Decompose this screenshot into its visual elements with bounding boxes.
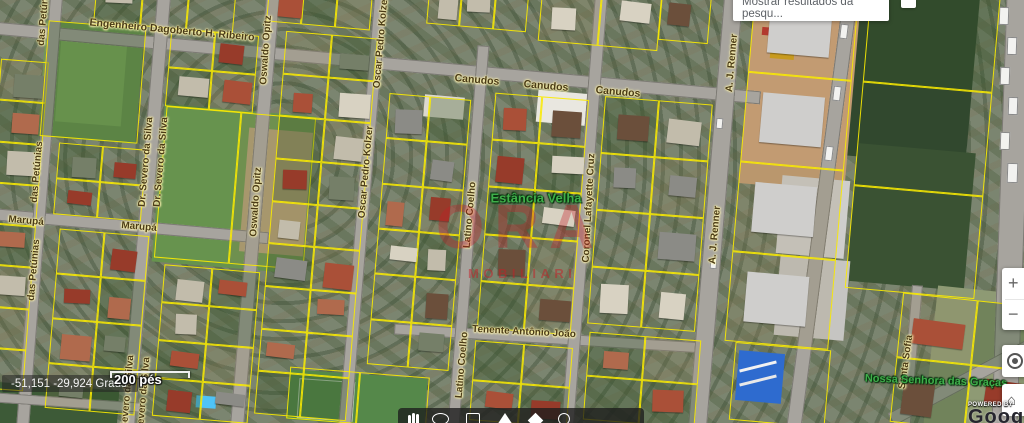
parcel-block [426, 0, 530, 32]
vehicle [999, 7, 1010, 25]
parcel [845, 185, 984, 299]
parcel [654, 100, 712, 161]
parcel [48, 318, 97, 367]
parcel [729, 342, 831, 423]
roof [71, 157, 96, 179]
parcel [158, 302, 209, 344]
roof [13, 74, 44, 98]
parcel [56, 229, 105, 278]
roof [484, 390, 513, 409]
roof [652, 390, 683, 413]
vehicle [1007, 37, 1018, 55]
parcel [411, 277, 456, 326]
parcel [854, 82, 993, 196]
parcel [325, 77, 374, 123]
roof [551, 7, 576, 30]
parcel [596, 153, 654, 214]
roof [657, 232, 696, 262]
roof [668, 175, 697, 198]
street-label-canudos-3: Canudos [595, 84, 641, 100]
parcel [200, 382, 251, 423]
parcel-block [254, 31, 378, 421]
roof [667, 2, 691, 26]
roof [329, 176, 355, 200]
roof [666, 119, 702, 147]
parcel [378, 183, 423, 232]
zoom-in-button[interactable]: + [1002, 268, 1024, 299]
parcel [268, 201, 317, 247]
parcel [165, 67, 212, 110]
roof [437, 0, 458, 20]
vehicle [1000, 132, 1011, 150]
parcel [56, 142, 103, 182]
marker-tool-icon[interactable] [556, 411, 573, 423]
roof [551, 156, 584, 175]
warehouse-roof [759, 92, 825, 147]
parcel [301, 0, 340, 27]
roof [278, 0, 304, 18]
roof [338, 93, 371, 119]
parcel [367, 319, 412, 368]
parcel [382, 138, 427, 187]
roof [317, 299, 345, 315]
zoom-out-button[interactable]: − [1002, 300, 1024, 331]
roof [60, 334, 93, 361]
parcel [101, 232, 150, 281]
pan-tool-icon[interactable] [412, 413, 415, 423]
parcel [597, 0, 662, 51]
roof [292, 92, 313, 112]
parcel [426, 0, 463, 26]
parcel [493, 0, 530, 32]
vehicle [1000, 67, 1011, 85]
roof [108, 297, 132, 320]
roof [105, 0, 132, 3]
roof [166, 390, 192, 414]
parcel [650, 157, 708, 218]
watermark-logo: ORA [436, 192, 604, 263]
parcel [335, 0, 374, 30]
parcel [725, 251, 836, 350]
roof [177, 76, 209, 98]
parcel [601, 96, 659, 157]
map-scale: 200 pés [110, 371, 190, 387]
parcel [97, 277, 146, 326]
parcel [276, 116, 325, 162]
roof [603, 351, 629, 370]
street-label-canudos-1: Canudos [454, 72, 500, 88]
roof [218, 279, 247, 296]
roof [104, 335, 126, 352]
roof [0, 231, 25, 248]
parcel [307, 290, 356, 336]
parcel [0, 305, 29, 350]
roof [395, 110, 423, 135]
vehicle [1006, 163, 1018, 183]
ellipse-tool-icon[interactable] [432, 413, 449, 423]
watermark-text: MOBILIARI [468, 266, 576, 281]
parcel [0, 59, 49, 104]
parcel [587, 267, 645, 328]
roof [599, 284, 628, 314]
parcel [161, 264, 212, 306]
my-location-button[interactable] [1002, 345, 1024, 377]
roof [274, 257, 307, 281]
warehouse-roof [743, 271, 809, 326]
parcel [586, 332, 645, 380]
roof [169, 350, 199, 369]
roof [430, 160, 454, 183]
triangle-tool-icon[interactable] [497, 413, 513, 423]
roof [418, 333, 444, 353]
roof [911, 318, 965, 349]
parcel [408, 322, 453, 371]
roof [110, 249, 138, 273]
roof [67, 190, 92, 206]
parcel [265, 243, 314, 289]
roof [389, 245, 417, 262]
roof [339, 53, 369, 70]
ui-fragment [901, 0, 916, 8]
parcel [328, 35, 377, 81]
roof [659, 292, 687, 320]
parcel [459, 0, 496, 29]
parcel [279, 73, 328, 119]
show-search-results-button[interactable]: Mostrar resultados da pesqu... [733, 0, 889, 21]
roof [215, 392, 245, 408]
parcel [386, 93, 431, 142]
provider-logo: Google [968, 408, 1024, 423]
roof [552, 110, 582, 138]
parcel [209, 71, 256, 114]
map-canvas[interactable]: Engenheiro Dagoberto H. RibeiroCanudosCa… [0, 0, 1024, 423]
parcel [203, 344, 254, 386]
parcel-block [587, 96, 713, 332]
roof [425, 293, 449, 319]
parcel-block [53, 142, 147, 221]
parcel [639, 380, 698, 423]
roof [278, 219, 301, 240]
roof [113, 162, 136, 179]
parcel-block [266, 0, 374, 30]
target-icon [1007, 353, 1023, 369]
roof [617, 114, 650, 141]
parcel [732, 161, 843, 260]
parcel [206, 306, 257, 348]
vehicle [715, 117, 723, 129]
parcel [374, 229, 419, 278]
parcel [740, 72, 851, 171]
parcel-block [658, 0, 712, 44]
roof [175, 314, 196, 335]
roof [175, 279, 205, 303]
parcel [535, 143, 586, 194]
parcel [0, 100, 46, 145]
parcel [641, 271, 699, 332]
parcel [272, 158, 321, 204]
attribution: POWERED BY Google [968, 402, 1024, 423]
parcel [538, 0, 603, 46]
roof [495, 156, 525, 185]
parcel [488, 140, 539, 191]
roof [539, 299, 571, 322]
roof [12, 113, 40, 135]
roof [219, 43, 246, 65]
parcel [472, 340, 524, 384]
roof [283, 169, 307, 189]
vehicle [1008, 97, 1019, 115]
parcel [658, 0, 712, 44]
parcel [283, 31, 332, 77]
parcel-block [40, 20, 147, 143]
zoom-controls: + − [1002, 268, 1024, 330]
parcel [40, 20, 147, 143]
roof [64, 289, 90, 304]
roof [385, 202, 404, 227]
parcel [286, 367, 360, 423]
roof [467, 0, 491, 12]
roof [614, 168, 637, 189]
roof [503, 108, 527, 132]
rectangle-tool-icon[interactable] [466, 413, 480, 423]
parcel [539, 96, 590, 147]
parcel [209, 268, 260, 310]
draw-toolbar [398, 408, 644, 423]
parcel [492, 93, 543, 144]
roof [0, 275, 26, 296]
roof [619, 1, 651, 24]
parcel-block [729, 342, 831, 423]
polygon-tool-icon[interactable] [528, 413, 544, 423]
parcel [261, 286, 310, 332]
parcel [427, 96, 472, 145]
parcel-block [152, 264, 260, 423]
parcel-block [845, 0, 1002, 299]
parcel-block [538, 0, 663, 51]
roof [322, 262, 354, 290]
parcel [52, 273, 101, 322]
parcel [371, 274, 416, 323]
parcel [53, 178, 100, 218]
warehouse-roof [751, 182, 817, 237]
parcel [423, 142, 468, 191]
parcel [646, 214, 704, 275]
parcel [521, 344, 573, 388]
roof [334, 136, 365, 162]
street-label-canudos-2: Canudos [523, 78, 569, 94]
roof [266, 342, 296, 360]
parcel [311, 247, 360, 293]
roof [222, 80, 253, 105]
parcel [642, 336, 701, 384]
scale-label: 200 pés [114, 372, 190, 387]
